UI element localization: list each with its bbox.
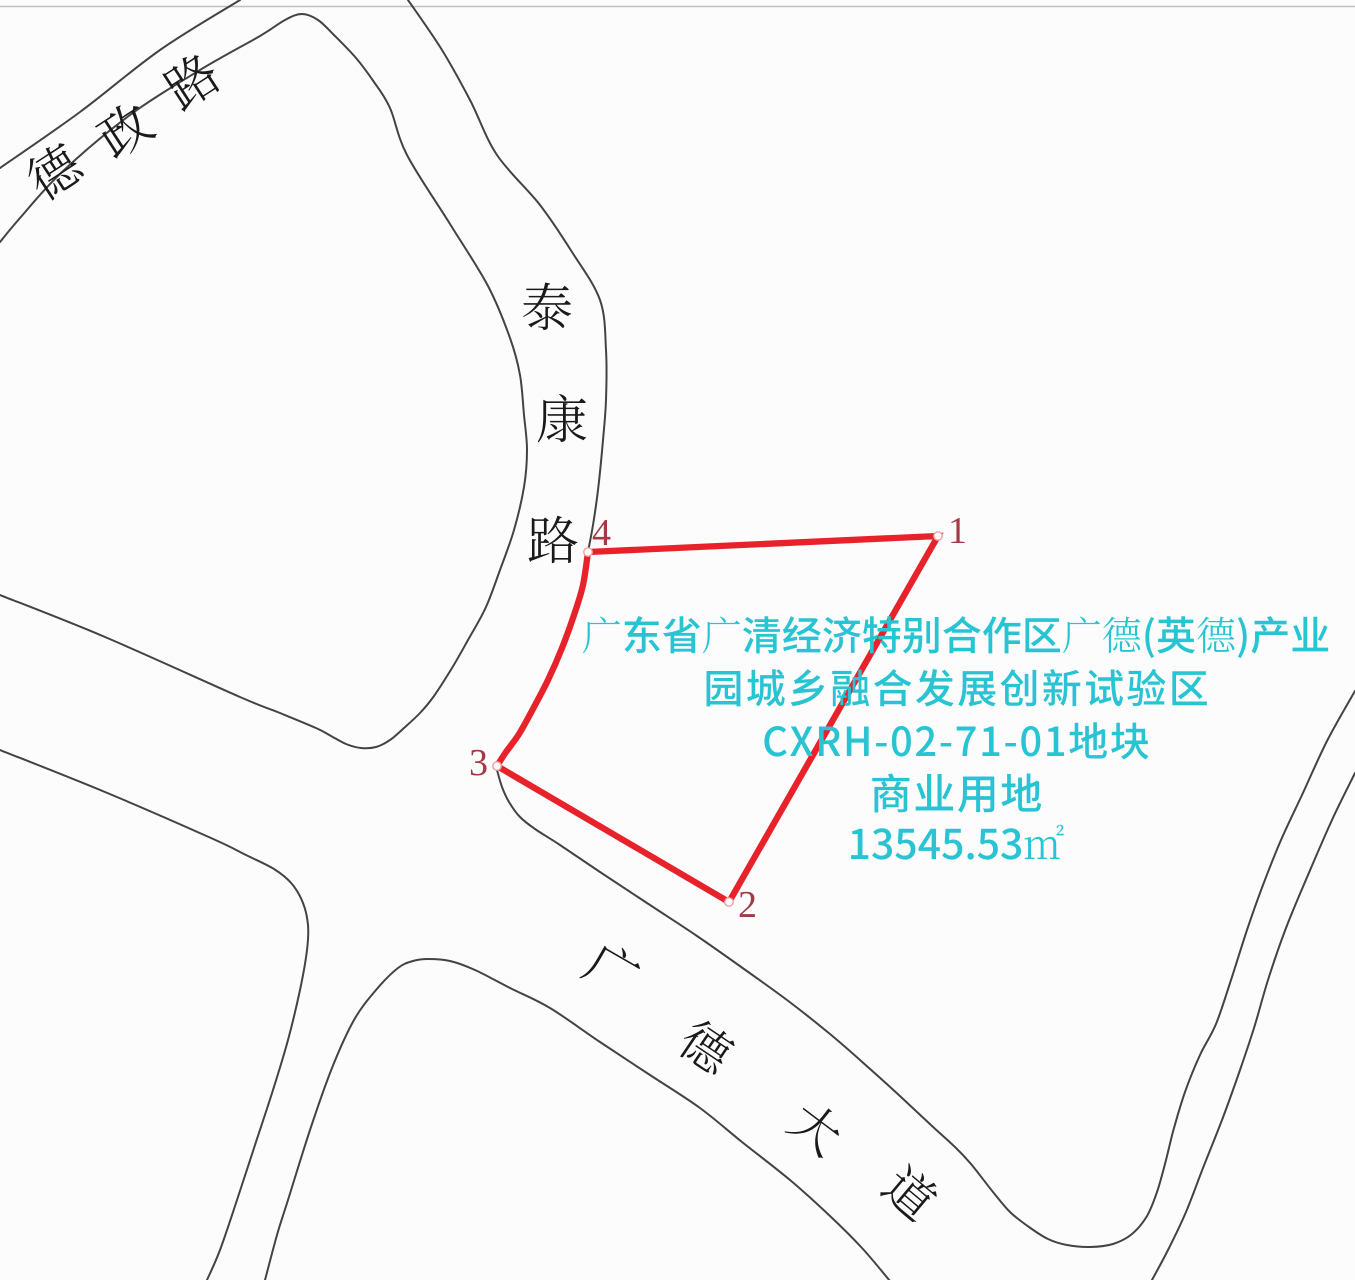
svg-text:4: 4 [592, 512, 611, 554]
svg-text:3: 3 [469, 742, 488, 784]
svg-text:1: 1 [948, 510, 967, 552]
svg-text:2: 2 [738, 884, 757, 926]
